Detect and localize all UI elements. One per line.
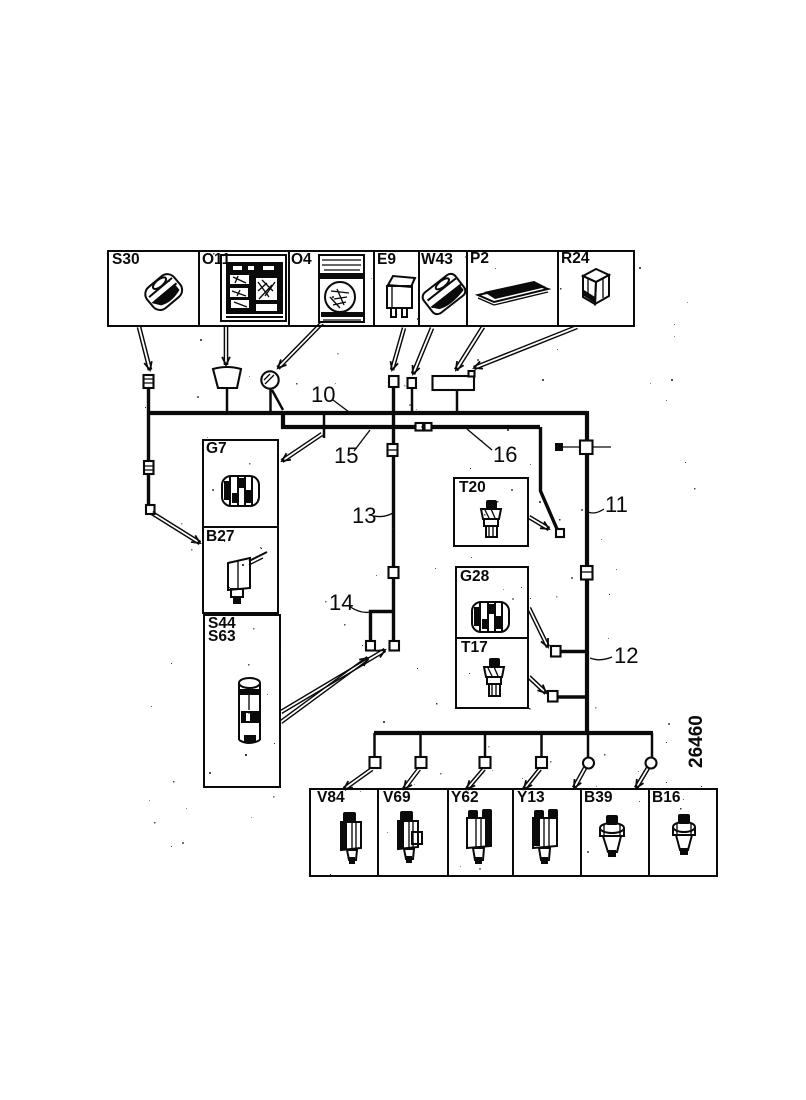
svg-text:B39: B39: [584, 789, 613, 806]
svg-text:E9: E9: [377, 251, 396, 268]
svg-text:B16: B16: [652, 789, 681, 806]
svg-text:14: 14: [329, 590, 353, 615]
svg-text:15: 15: [334, 443, 358, 468]
svg-text:V84: V84: [317, 789, 345, 806]
svg-text:16: 16: [493, 442, 517, 467]
svg-text:11: 11: [605, 492, 628, 517]
svg-text:10: 10: [311, 382, 335, 407]
svg-text:Y62: Y62: [451, 789, 479, 806]
svg-text:G28: G28: [460, 568, 490, 585]
svg-text:S30: S30: [112, 251, 140, 268]
svg-text:S63: S63: [208, 628, 236, 645]
svg-text:13: 13: [352, 503, 376, 528]
svg-text:26460: 26460: [686, 715, 707, 768]
svg-text:B27: B27: [206, 528, 234, 545]
svg-text:V69: V69: [383, 789, 411, 806]
svg-text:P2: P2: [470, 250, 489, 267]
svg-text:Y13: Y13: [517, 789, 545, 806]
svg-text:T20: T20: [459, 479, 486, 496]
svg-text:G7: G7: [206, 440, 227, 457]
svg-text:W43: W43: [421, 251, 453, 268]
svg-text:O4: O4: [291, 251, 312, 268]
svg-text:T17: T17: [461, 639, 488, 656]
svg-text:12: 12: [614, 643, 638, 668]
svg-text:R24: R24: [561, 250, 590, 267]
